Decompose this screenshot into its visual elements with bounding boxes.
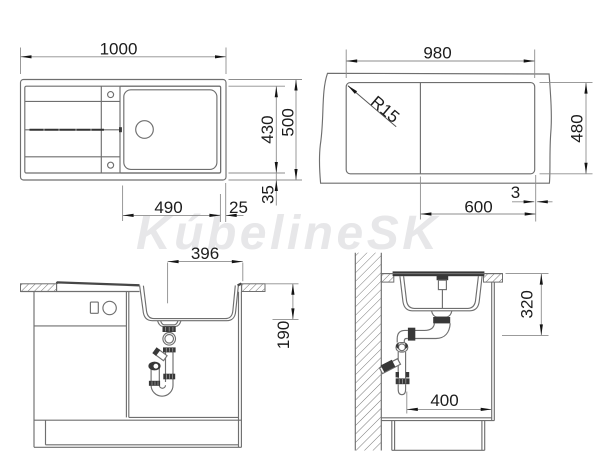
svg-text:980: 980 [423,43,451,62]
svg-text:430: 430 [258,115,277,143]
svg-text:35: 35 [258,185,277,204]
svg-text:3: 3 [511,183,520,202]
svg-text:500: 500 [278,108,297,136]
svg-text:190: 190 [274,321,293,349]
svg-text:396: 396 [191,244,219,263]
svg-text:1000: 1000 [100,39,138,58]
svg-text:320: 320 [517,290,536,318]
svg-text:25: 25 [229,198,248,217]
svg-text:400: 400 [430,391,458,410]
svg-text:480: 480 [567,114,586,142]
svg-text:490: 490 [154,198,182,217]
svg-text:600: 600 [464,198,492,217]
